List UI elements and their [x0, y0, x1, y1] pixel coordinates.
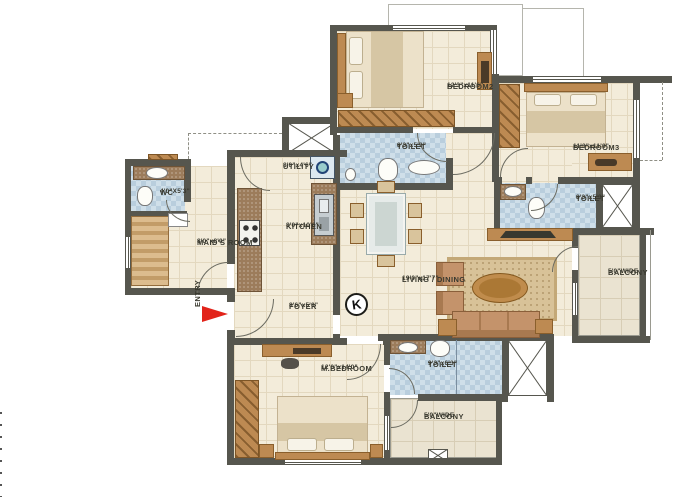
bedroom3-dresser	[588, 153, 632, 171]
wall	[502, 340, 508, 402]
dashed-line-top-left	[188, 133, 282, 134]
wall	[337, 183, 453, 190]
bedroom2-nightstand	[337, 93, 353, 108]
toilet2-counter-basin	[408, 160, 440, 175]
master-desk-chair	[281, 358, 299, 369]
side-table	[438, 319, 457, 336]
wall	[558, 177, 640, 184]
wall	[330, 25, 337, 135]
duct-shaft-top	[288, 123, 335, 153]
wc-toilet	[137, 186, 153, 206]
master-wardrobe	[235, 380, 259, 458]
balcony-right-floor	[578, 234, 640, 336]
wall	[418, 394, 504, 401]
wc-vent	[148, 154, 178, 160]
dining-chair	[350, 203, 364, 218]
compass-letter: K	[351, 294, 363, 314]
toilet-master-basin	[398, 342, 418, 353]
wall	[384, 400, 390, 416]
wall	[184, 159, 191, 202]
floor-plan: ENTRY K BEDROOM2 12'3"x11'6" TOILET 8'3"…	[0, 0, 700, 500]
wall	[282, 117, 335, 124]
toilet2-wc	[378, 158, 398, 181]
master-balcony-window	[384, 416, 390, 450]
wall	[547, 334, 554, 402]
terrace-outline-ext-v	[583, 8, 584, 76]
toilet3-basin	[504, 186, 522, 197]
wc-basin	[146, 167, 168, 179]
master-desk	[262, 344, 332, 357]
tv	[500, 231, 556, 238]
left-edge-marks	[0, 412, 2, 497]
dining-chair	[408, 203, 422, 218]
dashed-line-top-left-v	[188, 133, 189, 159]
dining-chair	[408, 229, 422, 244]
pillow	[349, 37, 363, 65]
wall	[596, 184, 602, 228]
bedroom3-wardrobe	[499, 84, 520, 148]
compass-marker: K	[345, 293, 368, 316]
master-headboard	[275, 452, 370, 460]
side-table	[535, 319, 553, 334]
dining-chair	[377, 255, 395, 267]
pillow	[570, 94, 597, 106]
wall	[494, 76, 533, 83]
dashed-line-right-v	[662, 82, 663, 160]
wall	[227, 288, 235, 302]
maids-bed	[131, 216, 169, 286]
wall	[633, 158, 640, 235]
wall	[640, 228, 646, 342]
toilet-master-wc	[430, 340, 450, 357]
dining-table	[367, 194, 405, 254]
toilet2-basin-pedestal	[345, 168, 356, 181]
bedroom2-wardrobe	[338, 110, 455, 127]
wall	[446, 158, 453, 185]
wall	[361, 458, 502, 465]
wall	[572, 336, 650, 343]
pillow	[287, 438, 317, 451]
bedroom3-headboard	[524, 83, 608, 92]
entry-arrow-icon	[202, 306, 228, 322]
living-window-right	[572, 283, 578, 315]
balcony-railing	[650, 230, 651, 340]
pillow	[534, 94, 561, 106]
bedroom3-window-right	[633, 100, 640, 158]
terrace-outline-ext-h	[523, 8, 583, 9]
bedroom3-window-top	[533, 76, 601, 83]
master-nightstand	[259, 444, 274, 458]
wall	[282, 117, 288, 154]
coffee-table	[472, 273, 528, 303]
dining-chair	[350, 229, 364, 244]
sofa	[452, 311, 540, 338]
duct-shaft-right	[602, 184, 633, 228]
wall	[494, 177, 502, 184]
wall	[496, 398, 502, 464]
wall	[333, 127, 413, 133]
dining-chair	[377, 181, 395, 193]
dashed-line-right-h	[640, 160, 662, 161]
wall	[633, 83, 640, 100]
wall	[227, 344, 234, 465]
duct-shaft-bottom	[508, 340, 547, 396]
wall	[125, 159, 191, 166]
master-nightstand	[370, 444, 383, 458]
wall	[526, 177, 532, 184]
pillow	[324, 438, 354, 451]
